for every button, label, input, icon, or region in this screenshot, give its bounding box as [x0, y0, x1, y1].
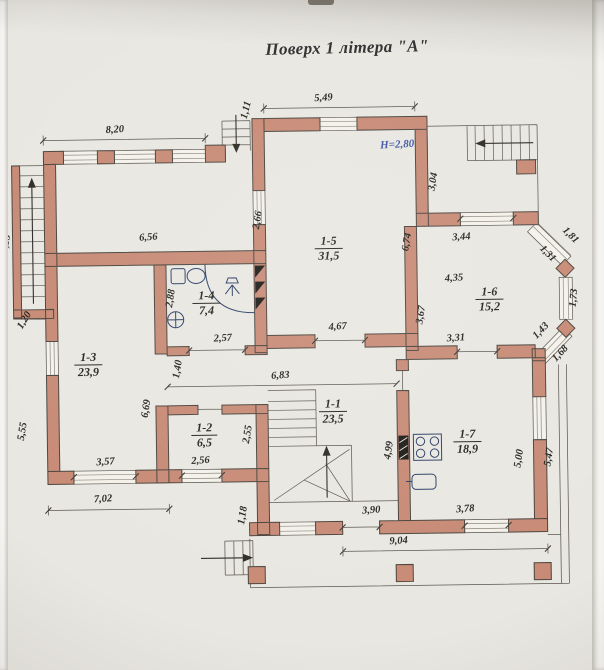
room-area-1-3: 23,9: [77, 365, 99, 379]
room-id-1-1: 1-1: [325, 396, 341, 410]
dim-5-47: 5,47: [542, 446, 556, 467]
stair-treads: [19, 125, 533, 450]
room-id-1-7: 1-7: [459, 427, 476, 441]
room-area-1-5: 31,5: [317, 248, 339, 262]
dim-3-57: 3,57: [95, 456, 116, 468]
dim-1-40: 1,40: [171, 359, 185, 380]
dim-3-78: 3,78: [455, 503, 476, 515]
dim-3-31: 3,31: [445, 332, 465, 344]
dim-1-18: 1,18: [236, 505, 250, 526]
room-id-1-4: 1-4: [198, 288, 214, 302]
floor-plan-canvas: 1-1 23,5 1-2 6,5 1-3 23,9 1-4 7,4 1-5 31…: [0, 0, 604, 670]
dim-1-43: 1,43: [531, 320, 552, 341]
dim-3-04: 3,04: [426, 172, 440, 193]
ceiling-height-label: H=2,80: [379, 138, 415, 152]
plan-drawing: 1-1 23,5 1-2 6,5 1-3 23,9 1-4 7,4 1-5 31…: [0, 89, 586, 592]
dimension-ticks: [40, 102, 551, 559]
room-area-1-7: 18,9: [457, 442, 478, 456]
dim-4-99: 4,99: [382, 440, 396, 462]
dim-6-56: 6,56: [139, 231, 159, 243]
sink-fixture: [168, 312, 184, 328]
paper-edge-left: [0, 0, 8, 670]
dim-2-55: 2,55: [241, 424, 255, 445]
room-area-1-1: 23,5: [322, 411, 344, 425]
page-header-mark: [308, 0, 334, 5]
dim-1-11: 1,11: [239, 100, 254, 120]
window-glass: [43, 114, 576, 538]
dim-1-81: 1,81: [560, 225, 581, 246]
dim-6-69: 6,69: [140, 398, 154, 419]
dim-1-73: 1,73: [568, 288, 581, 307]
room-area-1-2: 6,5: [197, 435, 212, 449]
dim-2-88: 2,88: [164, 288, 178, 310]
dim-2-56: 2,56: [190, 455, 211, 467]
landing-stair-left-arrow: [475, 139, 533, 148]
exterior-stair-up-arrow: [28, 178, 38, 304]
room-id-1-5: 1-5: [321, 233, 337, 247]
paper-edge-right: [592, 0, 604, 670]
dim-4-67: 4,67: [327, 321, 348, 333]
dim-5-49: 5,49: [314, 92, 334, 104]
dim-5-55: 5,55: [16, 421, 30, 441]
dim-7-02: 7,02: [94, 493, 114, 505]
dim-3-44: 3,44: [451, 231, 471, 243]
dim-4-35: 4,35: [443, 272, 463, 284]
dim-9-04: 9,04: [389, 535, 408, 547]
room-id-1-6: 1-6: [481, 284, 497, 298]
room-id-1-3: 1-3: [80, 350, 96, 364]
room-id-1-2: 1-2: [196, 420, 212, 434]
dim-2-57: 2,57: [212, 332, 233, 344]
room-area-1-6: 15,2: [479, 299, 500, 313]
porch-entry-right-arrow: [201, 554, 253, 563]
stove-fixture: [413, 434, 441, 460]
dim-8-20: 8,20: [105, 124, 125, 136]
toilet-fixture: [171, 268, 205, 283]
room-area-1-4: 7,4: [199, 303, 214, 317]
dim-6-83: 6,83: [271, 370, 290, 382]
vent-shafts: [255, 264, 409, 462]
internal-stair-up-arrow: [322, 446, 331, 498]
dim-5-00: 5,00: [512, 448, 526, 469]
dim-3-67: 3,67: [414, 304, 428, 326]
dim-3-90: 3,90: [361, 504, 382, 516]
